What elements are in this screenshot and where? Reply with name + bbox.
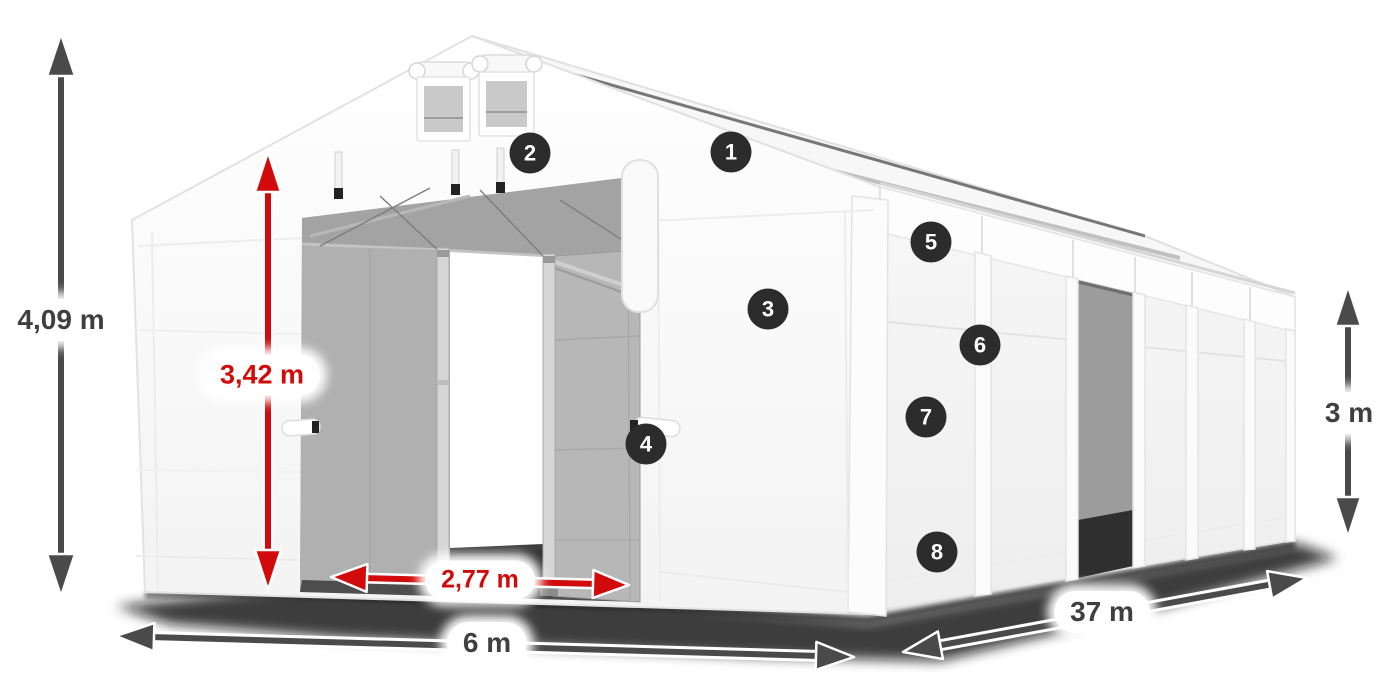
rolled-door: [622, 160, 658, 312]
dimension-label-side-height: 3 m: [1309, 392, 1389, 434]
pass-through-gap: [450, 252, 543, 552]
dimension-label-door-width: 2,77 m: [425, 561, 535, 600]
callout-marker-5: 5: [911, 222, 952, 263]
dimension-label-total-height: 4,09 m: [1, 299, 120, 341]
dimension-label-door-height: 3,42 m: [204, 355, 320, 396]
side-door-opening: [1078, 280, 1133, 578]
dimension-label-length: 37 m: [1054, 591, 1150, 633]
callout-marker-1: 1: [711, 132, 752, 173]
front-corner-column: [848, 196, 888, 616]
front-opening: [282, 148, 681, 602]
callout-marker-7: 7: [906, 397, 947, 438]
dimension-label-width: 6 m: [447, 622, 527, 664]
tent-illustration: [0, 0, 1400, 700]
tent-dimension-diagram: 4,09 m 3,42 m 2,77 m 6 m 37 m 3 m 1 2 3 …: [0, 0, 1400, 700]
callout-marker-6: 6: [960, 325, 1001, 366]
callout-marker-2: 2: [510, 133, 551, 174]
callout-marker-4: 4: [626, 424, 667, 465]
callout-marker-3: 3: [748, 289, 789, 330]
callout-marker-8: 8: [917, 532, 958, 573]
